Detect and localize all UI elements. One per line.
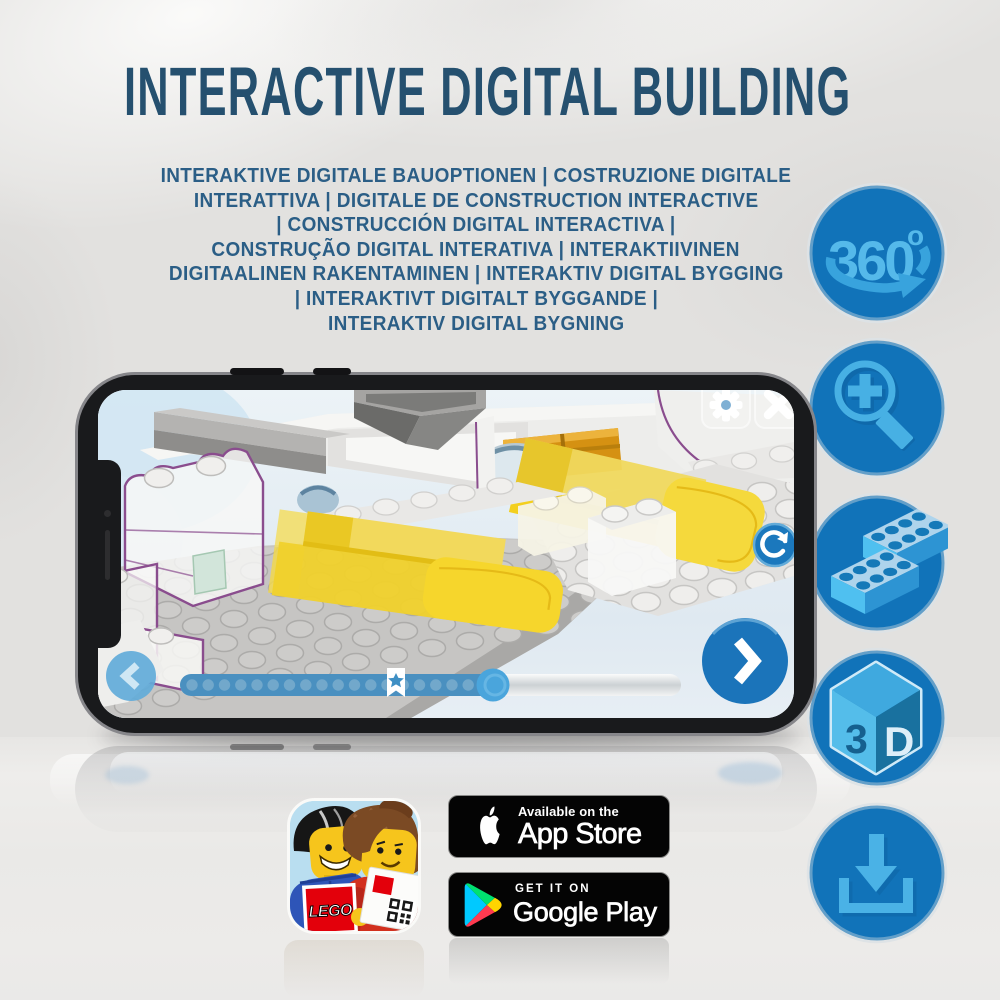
svg-text:D: D — [884, 718, 914, 765]
svg-text:3: 3 — [845, 716, 868, 762]
svg-text:o: o — [907, 220, 924, 251]
svg-text:LEGO: LEGO — [308, 902, 353, 921]
